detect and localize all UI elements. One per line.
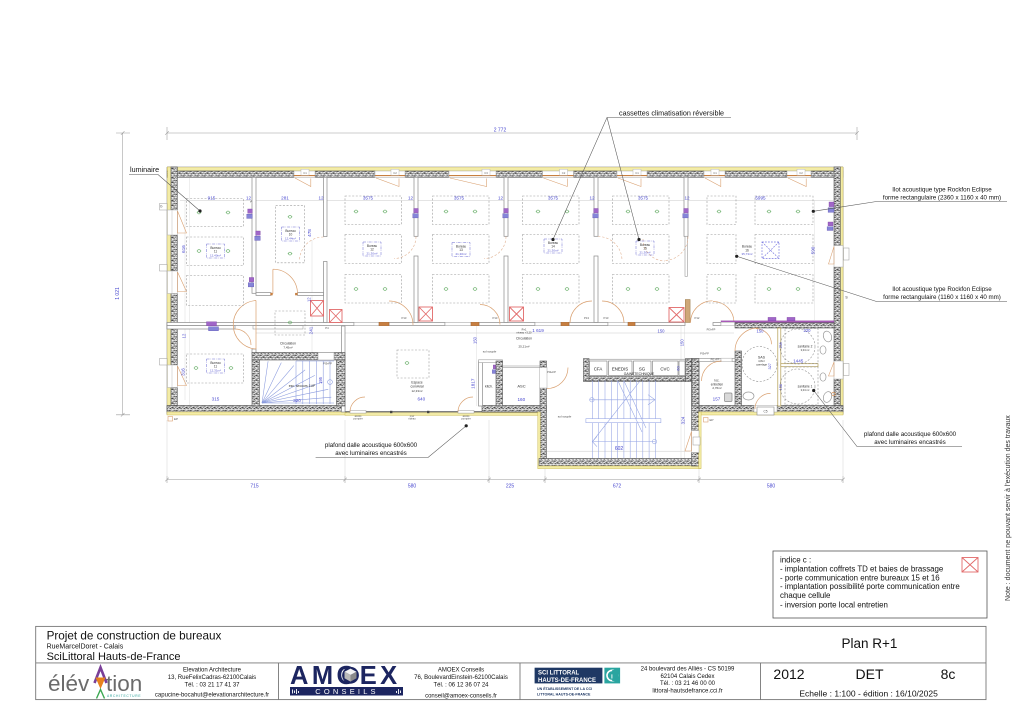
svg-text:12: 12 [182,333,187,338]
svg-text:Ilot acoustique type Rockfon E: Ilot acoustique type Rockfon Eclipse [892,187,992,194]
svg-text:C2: C2 [799,171,803,175]
svg-text:3,04 m²: 3,04 m² [801,348,810,352]
svg-text:2012: 2012 [773,666,804,682]
svg-text:1 619: 1 619 [532,328,544,333]
svg-text:i: i [611,674,613,681]
svg-text:580: 580 [408,484,417,490]
svg-text:ASC: ASC [517,384,525,389]
svg-text:60: 60 [676,366,681,371]
svg-text:SG: SG [639,367,646,372]
svg-text:62104 Calais Cedex: 62104 Calais Cedex [660,674,714,680]
svg-text:5995: 5995 [755,196,766,201]
svg-text:C5: C5 [763,410,767,414]
svg-text:SciLittoral Hauts-de-France: SciLittoral Hauts-de-France [47,651,181,663]
svg-text:EP: EP [174,417,178,421]
svg-text:Tél. : 06 12 36 07 24: Tél. : 06 12 36 07 24 [433,683,489,689]
svg-text:1445: 1445 [793,359,804,364]
svg-text:Projet de construction de bure: Projet de construction de bureaux [47,630,222,643]
svg-text:RueMarcelDoret - Calais: RueMarcelDoret - Calais [47,644,124,651]
svg-text:2 772: 2 772 [494,128,507,134]
svg-text:UN ÉTABLISSEMENT DE LA CCI: UN ÉTABLISSEMENT DE LA CCI [537,686,592,691]
svg-text:915: 915 [208,196,216,201]
svg-text:150: 150 [658,329,666,334]
svg-text:PI1+FP: PI1+FP [711,358,720,362]
svg-text:12,44m²: 12,44m² [285,236,296,240]
svg-text:pompier: pompier [461,417,471,421]
svg-text:DET: DET [856,666,884,682]
svg-text:P13: P13 [493,316,498,320]
svg-text:SAS: SAS [758,356,766,360]
svg-text:1817: 1817 [471,378,476,389]
svg-text:tion: tion [106,671,142,696]
svg-text:25,21m²: 25,21m² [518,345,529,349]
svg-text:CFA: CFA [594,367,603,372]
svg-text:Circulation: Circulation [516,337,532,341]
svg-text:esc. secours 1UP: esc. secours 1UP [289,384,316,388]
svg-text:P4: P4 [325,326,329,330]
svg-text:157: 157 [713,397,721,402]
svg-text:1 021: 1 021 [115,287,121,300]
svg-text:2,76m²: 2,76m² [712,386,721,390]
svg-text:640: 640 [417,397,425,402]
svg-text:C1: C1 [635,171,639,175]
svg-text:indice c :: indice c : [780,556,811,565]
svg-text:chaque cellule: chaque cellule [780,591,831,600]
svg-text:ENEDIS: ENEDIS [612,367,628,372]
svg-text:241: 241 [309,326,314,334]
svg-text:281: 281 [281,196,289,201]
svg-text:Elevation Architecture: Elevation Architecture [183,668,242,674]
svg-text:316: 316 [181,368,186,376]
svg-text:HAUTS-DE-FRANCE: HAUTS-DE-FRANCE [538,678,596,684]
svg-text:niveau +3,20: niveau +3,20 [517,331,532,335]
svg-text:Note : document ne pouvant ser: Note : document ne pouvant servir à l'ex… [1005,415,1012,601]
svg-text:P13: P13 [402,316,407,320]
svg-text:21,30m²: 21,30m² [455,252,466,256]
svg-text:7,45m²: 7,45m² [283,346,292,350]
svg-text:3575: 3575 [454,196,465,201]
svg-text:672: 672 [613,484,622,490]
svg-text:590: 590 [811,246,816,254]
svg-text:capucine-bocahut@elevationarch: capucine-bocahut@elevationarchitecture.f… [155,693,269,699]
svg-text:Ilot acoustique type Rockfon E: Ilot acoustique type Rockfon Eclipse [892,286,992,293]
svg-text:CVC: CVC [660,367,669,372]
svg-text:C3: C3 [484,171,488,175]
svg-text:PI3+FP: PI3+FP [323,362,332,366]
svg-text:CONSEILS: CONSEILS [315,687,379,696]
svg-text:littoral-hautsdefrance.cci.fr: littoral-hautsdefrance.cci.fr [652,688,722,694]
svg-text:avec luminaires encastrés: avec luminaires encastrés [335,450,407,457]
svg-text:C1: C1 [713,171,717,175]
svg-text:sanitaire 2: sanitaire 2 [798,345,813,349]
svg-text:PI2+FP: PI2+FP [547,370,556,374]
svg-text:sol souple: sol souple [483,349,497,353]
svg-text:715: 715 [250,484,259,490]
svg-text:cassettes climatisation révers: cassettes climatisation réversible [619,109,724,118]
svg-text:21,30m²: 21,30m² [547,248,558,252]
svg-text:580: 580 [767,484,776,490]
svg-text:3575: 3575 [363,196,374,201]
svg-text:Plan R+1: Plan R+1 [842,636,898,651]
svg-text:76, BoulevardEinstein-62100Cal: 76, BoulevardEinstein-62100Calais [414,675,508,681]
svg-text:EP: EP [710,418,714,422]
svg-text:12: 12 [589,196,595,201]
svg-text:12,40m²: 12,40m² [210,253,221,257]
svg-text:plafond dalle acoustique 600x6: plafond dalle acoustique 600x600 [864,431,957,438]
svg-text:12: 12 [684,196,690,201]
svg-text:GAINETECHNIQUE: GAINETECHNIQUE [624,372,655,376]
svg-text:C1: C1 [303,171,307,175]
svg-text:158: 158 [779,342,783,348]
svg-text:160: 160 [517,397,525,402]
svg-text:- implantation coffrets TD et: - implantation coffrets TD et baies de b… [780,565,944,574]
svg-text:- inversion porte local entret: - inversion porte local entretien [780,601,888,610]
svg-text:150: 150 [757,329,765,334]
svg-text:LITTORAL HAUTS-DE-FRANCE: LITTORAL HAUTS-DE-FRANCE [537,692,591,696]
svg-text:sol souple: sol souple [558,414,572,418]
svg-text:12: 12 [318,196,324,201]
svg-text:C2: C2 [562,171,566,175]
svg-text:12: 12 [408,196,414,201]
svg-text:150: 150 [473,336,478,344]
svg-text:Echelle : 1:100 - édition : 16: Echelle : 1:100 - édition : 16/10/2025 [799,689,938,699]
svg-text:P12: P12 [695,316,700,320]
svg-text:conseil@amoex-conseils.fr: conseil@amoex-conseils.fr [425,694,497,700]
svg-text:AMOEX Conseils: AMOEX Conseils [438,668,484,674]
svg-text:8c: 8c [941,666,956,682]
svg-text:avec luminaires encastrés: avec luminaires encastrés [874,439,946,446]
svg-text:- porte communication entre bu: - porte communication entre bureaux 15 e… [780,573,940,582]
svg-text:4,8m²: 4,8m² [758,359,765,363]
svg-text:478: 478 [307,229,312,237]
svg-text:PI3+FP: PI3+FP [707,328,716,332]
svg-text:21,30m²: 21,30m² [639,250,650,254]
svg-text:3575: 3575 [638,196,649,201]
svg-text:315: 315 [212,397,220,402]
svg-text:3,04 m²: 3,04 m² [801,388,810,392]
svg-text:P13: P13 [584,316,589,320]
svg-text:rideau: rideau [408,417,416,421]
svg-text:carrelage: carrelage [756,363,767,367]
svg-text:forme rectangulaire (1160 x 11: forme rectangulaire (1160 x 1160 x 40 mm… [883,294,1001,301]
svg-text:PI3+FP: PI3+FP [700,352,709,356]
svg-text:luminaire: luminaire [130,165,159,174]
svg-text:150: 150 [680,339,685,347]
svg-text:sanitaire 1: sanitaire 1 [798,385,813,389]
svg-text:12: 12 [246,196,252,201]
svg-text:12: 12 [498,196,504,201]
svg-text:12,33m²: 12,33m² [411,389,422,393]
svg-text:616: 616 [181,245,186,253]
svg-text:b: b [161,205,163,209]
svg-text:324: 324 [681,416,686,424]
svg-text:602: 602 [615,446,624,452]
svg-text:12: 12 [307,297,312,302]
svg-text:- implantation possibilité por: - implantation possibilité porte communi… [780,582,960,591]
svg-text:Tél. : 03 21 17 41 37: Tél. : 03 21 17 41 37 [184,683,240,689]
svg-text:SCI LITTORAL: SCI LITTORAL [538,671,580,677]
svg-text:13, RueFelixCadras-62100Calais: 13, RueFelixCadras-62100Calais [168,675,256,681]
svg-text:12,31m²: 12,31m² [210,368,221,372]
svg-text:Tél. : 03 21 46 00 00: Tél. : 03 21 46 00 00 [660,681,716,687]
svg-text:C2: C2 [393,171,397,175]
svg-text:élév: élév [48,671,90,696]
svg-text:21,30m²: 21,30m² [366,251,377,255]
svg-text:195: 195 [318,376,323,384]
svg-text:327: 327 [768,363,772,369]
svg-text:P13: P13 [604,316,609,320]
svg-text:ARCHITECTURE: ARCHITECTURE [107,694,141,698]
svg-text:225: 225 [506,484,515,490]
svg-text:forme rectangulaire (2360 x 11: forme rectangulaire (2360 x 1160 x 40 mm… [883,195,1001,202]
svg-text:220: 220 [804,328,812,333]
svg-text:plafond dalle acoustique 600x6: plafond dalle acoustique 600x600 [325,442,418,449]
svg-text:24 boulevard des Alliés - CS 5: 24 boulevard des Alliés - CS 50199 [641,667,735,673]
svg-text:320: 320 [293,398,301,403]
svg-text:kitch.: kitch. [485,385,493,389]
svg-text:35,73m²: 35,73m² [741,252,752,256]
svg-text:158: 158 [779,384,783,390]
svg-text:3575: 3575 [548,196,559,201]
svg-text:pompier: pompier [353,417,363,421]
